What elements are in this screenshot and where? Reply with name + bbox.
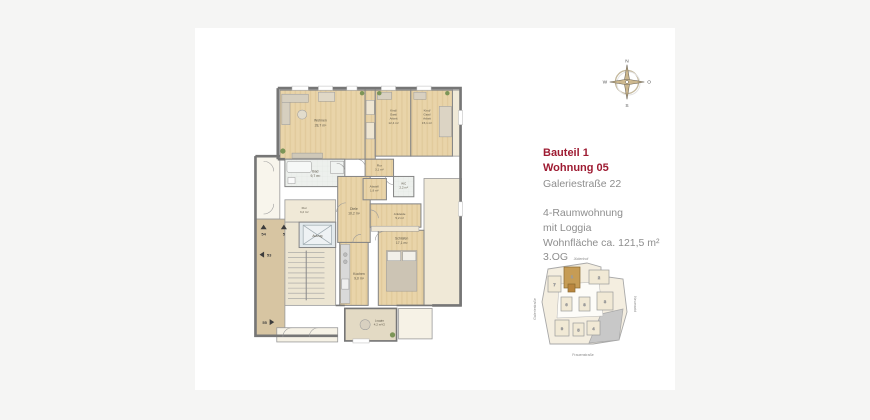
label-abstell: Abstell 1,9 m²: [370, 185, 379, 193]
label-aufzug: Aufzug: [312, 234, 322, 238]
svg-text:55: 55: [262, 320, 267, 325]
floor-plan-drawing: Wohnen 28,7 m² Kind/ Gast/ Arbeit 12,4 m…: [251, 80, 465, 346]
svg-text:9,7 m²: 9,7 m²: [310, 174, 321, 178]
svg-text:28,7 m²: 28,7 m²: [315, 123, 328, 127]
brochure-page: Wohnen 28,7 m² Kind/ Gast/ Arbeit 12,4 m…: [195, 28, 675, 390]
svg-text:Diele: Diele: [350, 207, 358, 211]
wohnung-title: Wohnung 05: [543, 161, 673, 176]
apartment-info: Bauteil 1 Wohnung 05 Galeriestraße 22 4-…: [543, 146, 673, 265]
bauteil-title: Bauteil 1: [543, 146, 673, 161]
svg-text:2,2 m²: 2,2 m²: [399, 186, 408, 190]
apartment-type: 4-Raumwohnung: [543, 206, 673, 221]
site-plan: 7 1 2 6 8 3 9 5 4: [529, 254, 641, 374]
compass-s: S: [625, 103, 628, 109]
street-top: Jüdenhof: [574, 257, 589, 261]
svg-text:Arbeit: Arbeit: [390, 117, 398, 121]
compass-w: W: [603, 80, 608, 86]
street-address: Galeriestraße 22: [543, 177, 673, 192]
compass-o: O: [647, 80, 651, 86]
svg-text:Kochen: Kochen: [353, 272, 365, 276]
svg-text:15,1 m²: 15,1 m²: [422, 121, 432, 125]
svg-text:Schlafen: Schlafen: [395, 236, 408, 240]
label-schlafen: Schlafen 17,1 m²: [395, 236, 408, 245]
label-wohnen: Wohnen 28,7 m²: [314, 119, 327, 128]
svg-text:1,9 m²: 1,9 m²: [370, 189, 379, 193]
street-left: Galeriestraße: [533, 298, 537, 320]
svg-text:3,2 m²: 3,2 m²: [300, 210, 309, 214]
compass-n: N: [625, 59, 629, 65]
svg-text:9,0 m²: 9,0 m²: [354, 277, 365, 281]
svg-text:54: 54: [261, 231, 266, 236]
svg-text:Bad: Bad: [312, 169, 318, 173]
svg-text:5,2 m²: 5,2 m²: [395, 216, 404, 220]
svg-text:17,1 m²: 17,1 m²: [396, 241, 409, 245]
svg-text:10,2 m²: 10,2 m²: [348, 212, 361, 216]
living-area: Wohnfläche ca. 121,5 m²: [543, 236, 673, 251]
label-loggia: Loggia 4,2 m²/2: [374, 319, 385, 327]
floor-plan: Wohnen 28,7 m² Kind/ Gast/ Arbeit 12,4 m…: [251, 80, 465, 346]
building-1-annex: [568, 284, 575, 292]
svg-text:53: 53: [267, 253, 272, 258]
room-loggia: [345, 308, 397, 340]
svg-text:4,2 m²/2: 4,2 m²/2: [374, 323, 385, 327]
svg-text:3,1 m²: 3,1 m²: [375, 167, 384, 171]
compass-rose: N O S W: [601, 54, 653, 110]
street-right: Neumarkt: [633, 296, 637, 312]
svg-text:12,4 m²: 12,4 m²: [388, 121, 398, 125]
svg-text:Arbeit: Arbeit: [423, 117, 431, 121]
label-kochen: Kochen 9,0 m²: [353, 272, 365, 281]
loggia-note: mit Loggia: [543, 221, 673, 236]
svg-text:Wohnen: Wohnen: [314, 119, 327, 123]
street-bottom: Frauenstraße: [572, 353, 594, 357]
